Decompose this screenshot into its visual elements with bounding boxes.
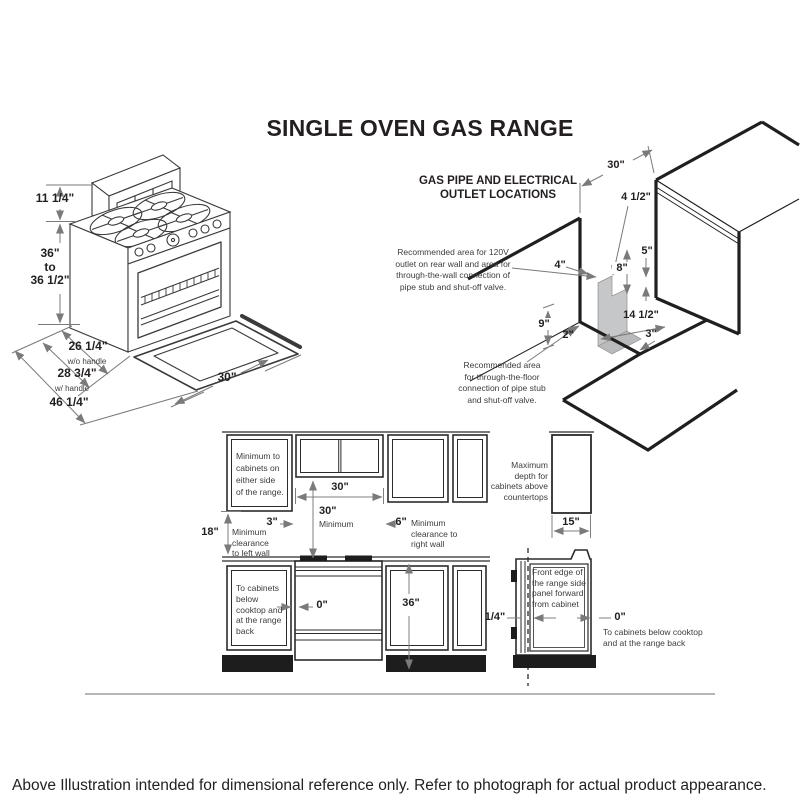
side-note-max-depth: Maximum depth for cabinets above counter…	[478, 460, 548, 502]
gas-dim-floor-strip-depth: 2"	[560, 329, 576, 341]
gas-dim-wall-zone-height: 9"	[534, 318, 554, 330]
dim-depth-wo-handle: 26 1/4"	[53, 339, 123, 353]
gas-dim-outlet-offset-left: 4"	[550, 259, 570, 271]
dim-depth-w-handle-note: w/ handle	[46, 384, 98, 393]
front-dim-counter-height: 36"	[398, 597, 424, 609]
side-note-front-edge: Front edge of the range side panel forwa…	[532, 567, 588, 609]
side-dim-front-offset: 1/4"	[482, 611, 508, 623]
gas-note-wall: Recommended area for 120V outlet on rear…	[388, 247, 518, 293]
dim-depth-wo-handle-note: w/o handle	[61, 357, 113, 366]
gas-dim-gap-right: 5"	[638, 245, 656, 257]
front-dim-vertical-min: 30"	[319, 505, 349, 517]
front-dim-zero-gap: 0"	[313, 599, 331, 611]
side-note-below-cabinets: To cabinets below cooktop and at the ran…	[603, 627, 715, 648]
front-dim-right-gap: 6"	[393, 516, 409, 528]
spec-sheet: SINGLE OVEN GAS RANGE 11 1/4" 36" to 36 …	[0, 0, 800, 800]
dim-body-height: 36" to 36 1/2"	[20, 247, 80, 288]
range-isometric-drawing	[70, 155, 300, 390]
front-elevation-dimensions	[221, 481, 409, 669]
gas-dim-floor-strip-right: 3"	[642, 328, 660, 340]
gas-dim-opening-width: 30"	[598, 159, 634, 171]
gas-dim-outlet-offset-top: 4 1/2"	[615, 191, 657, 203]
dim-depth-door-open: 46 1/4"	[36, 395, 102, 409]
front-note-side-cabinets: Minimum to cabinets on either side of th…	[236, 450, 290, 498]
side-dim-cabinet-depth: 15"	[558, 516, 584, 528]
front-note-right-wall: Minimum clearance to right wall	[411, 518, 469, 550]
gas-dim-outlet-zone-height: 8"	[612, 262, 632, 274]
gas-note-floor: Recommended area for through-the-floor c…	[450, 360, 554, 406]
gas-dim-floor-zone-width: 14 1/2"	[613, 309, 669, 321]
front-dim-left-wall-height: 18"	[196, 526, 224, 538]
front-dim-opening-width: 30"	[322, 481, 358, 493]
dim-range-width: 30"	[210, 370, 244, 384]
front-note-left-wall: Minimum clearance to left wall	[232, 527, 282, 559]
dim-backsplash-height: 11 1/4"	[22, 191, 88, 205]
front-dim-vertical-min-word: Minimum	[319, 519, 363, 529]
page-title: SINGLE OVEN GAS RANGE	[150, 115, 690, 142]
footer-disclaimer: Above Illustration intended for dimensio…	[12, 777, 794, 795]
side-dim-zero-gap: 0"	[612, 611, 628, 623]
gas-diagram-heading: GAS PIPE AND ELECTRICAL OUTLET LOCATIONS	[406, 174, 590, 202]
dim-depth-w-handle: 28 3/4"	[41, 366, 113, 380]
front-note-below-cabinets: To cabinets below cooktop and at the ran…	[236, 583, 290, 637]
